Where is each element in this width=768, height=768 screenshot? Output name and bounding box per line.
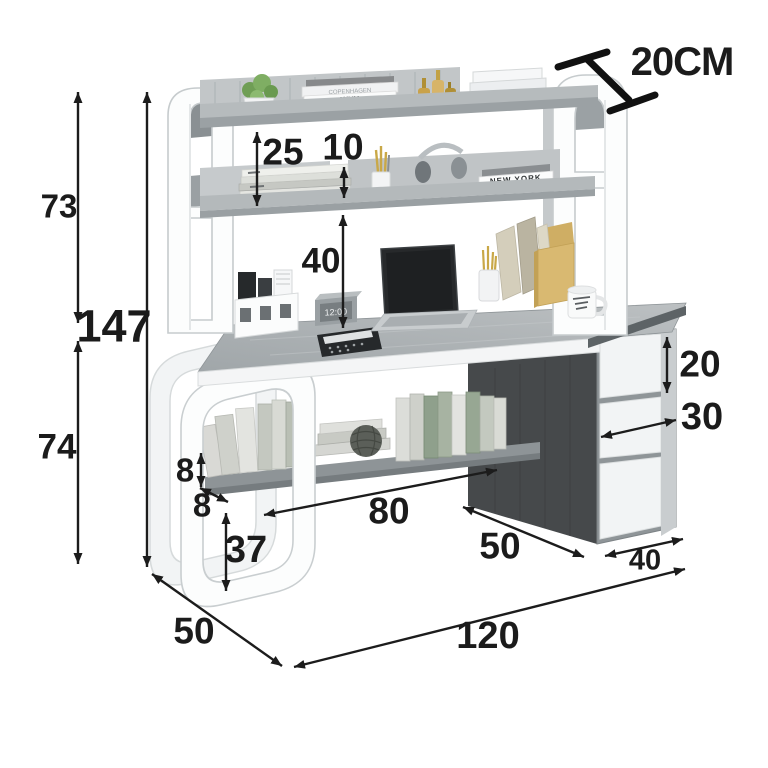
dim-label-frame-depth: 50: [173, 613, 214, 650]
dim-label-lip-depth: 8: [193, 489, 211, 522]
drawer-bottom: [600, 457, 661, 539]
decor-ball: [350, 425, 382, 457]
dim-label-shelf-depth: 20CM: [631, 42, 734, 82]
drawer-middle: [600, 397, 661, 458]
dim-label-hutch-height: 73: [41, 190, 78, 223]
dim-label-hutch-clearance: 40: [302, 244, 341, 279]
desk-clock: 12:00: [315, 291, 362, 326]
dim-label-drawer-top: 20: [679, 346, 720, 383]
laptop: [371, 245, 477, 331]
dim-label-desk-height: 74: [38, 430, 77, 465]
dim-label-drawer-middle: 30: [681, 398, 723, 436]
dim-label-shelf-spacing: 25: [262, 134, 303, 171]
dim-label-shelf-riser: 10: [322, 129, 363, 166]
drawer-top: [600, 334, 661, 398]
cabinet-corner-edge: [661, 329, 676, 536]
dim-label-desk-width: 120: [456, 617, 519, 655]
pencil-cup: [479, 246, 499, 301]
dim-label-lip-height: 8: [176, 454, 194, 487]
dim-label-leg-clearance: 37: [225, 531, 267, 569]
dim-label-total-height: 147: [76, 304, 151, 349]
product-dimension-diagram: COPENHAGEN WHY: [0, 0, 768, 768]
desk-organizer: [235, 270, 298, 338]
dim-label-cabinet-depth: 50: [479, 528, 520, 565]
mug: [568, 286, 606, 318]
desk-illustration: COPENHAGEN WHY: [0, 0, 768, 768]
dim-label-open-width: 80: [368, 493, 409, 530]
file-rack: [496, 217, 574, 308]
dim-label-cabinet-width: 40: [629, 547, 661, 576]
